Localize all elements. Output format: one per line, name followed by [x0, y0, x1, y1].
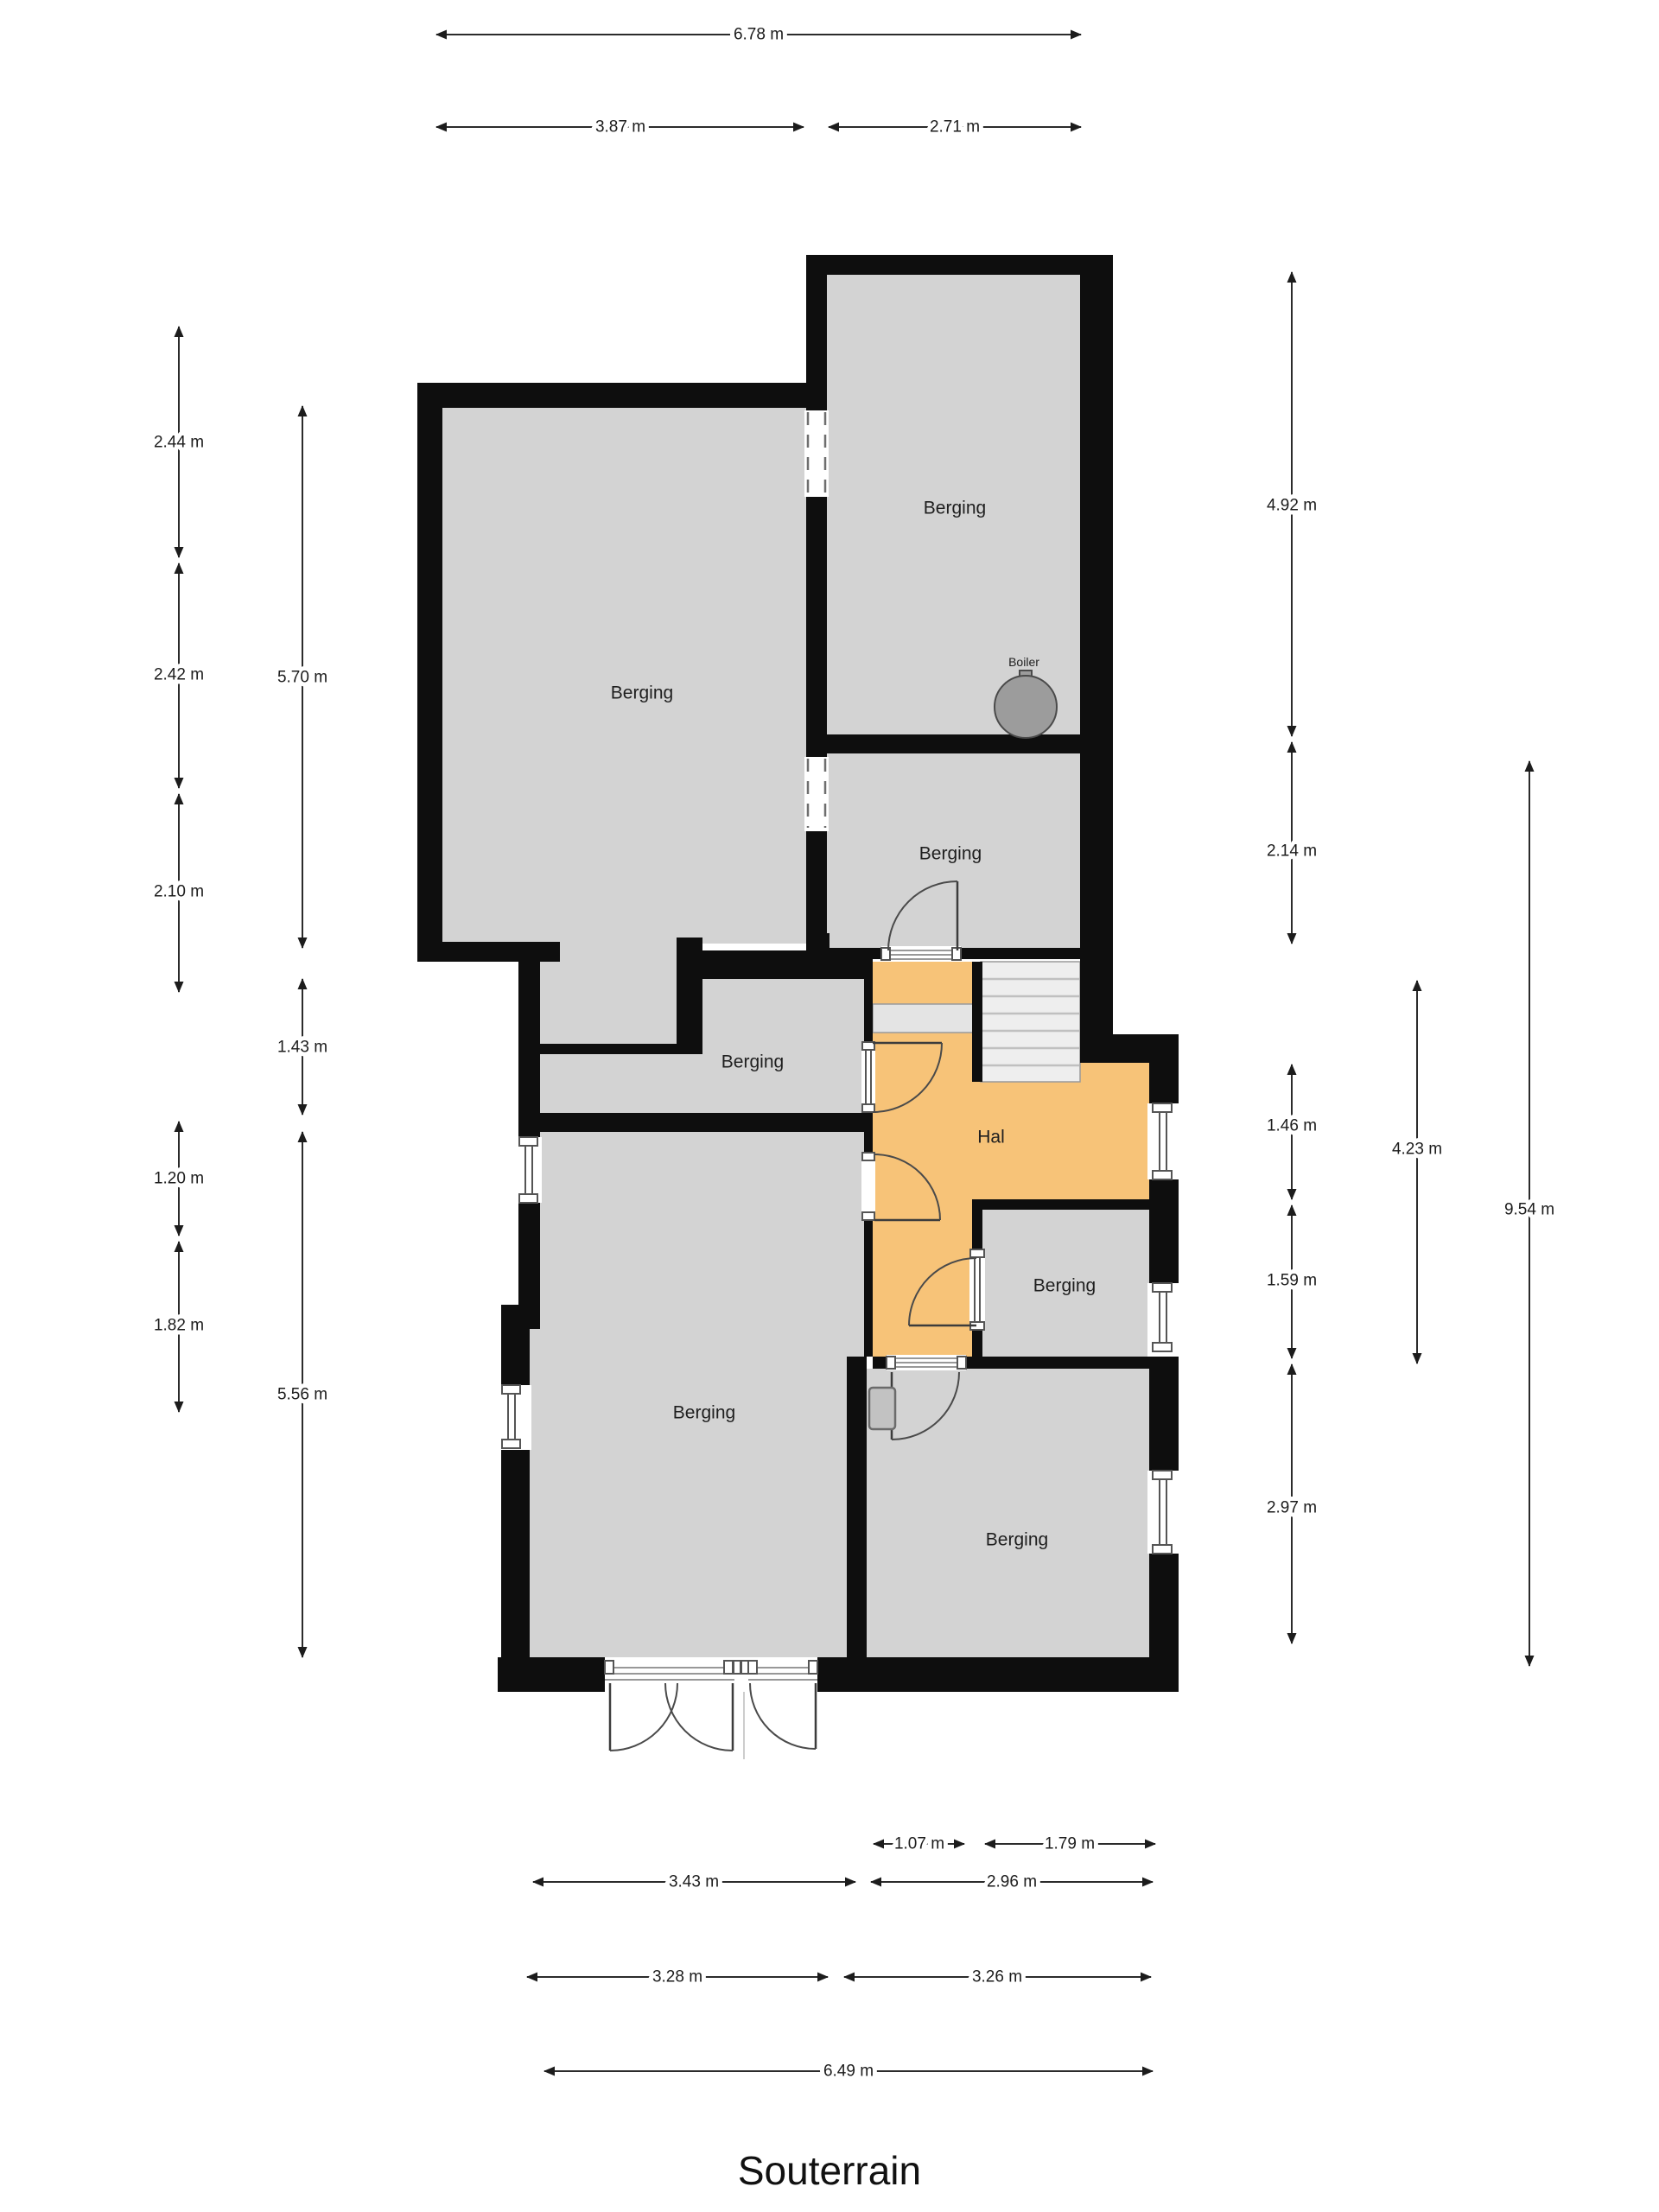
label-berging-mid-left: Berging	[721, 1052, 784, 1072]
room-berging-alcove	[540, 942, 677, 1044]
dim-left-seg3: 2.10 m	[154, 883, 204, 901]
door-opening-hal-west-2	[861, 1153, 875, 1220]
dim-bottom-row3-left: 3.28 m	[652, 1968, 702, 1986]
dim-right-berging: 1.59 m	[1267, 1272, 1317, 1290]
dim-left-seg2: 2.42 m	[154, 666, 204, 684]
dim-bottom-row2-right: 2.96 m	[987, 1873, 1037, 1891]
room-berging-mid-left	[702, 979, 864, 1113]
dim-right-hal: 1.46 m	[1267, 1117, 1317, 1135]
window-hal-right	[1147, 1103, 1180, 1179]
room-berging-bottom-left	[540, 1132, 864, 1357]
dim-top-right: 2.71 m	[930, 118, 980, 137]
floorplan-page: Berging Berging Berging Berging Hal Berg…	[0, 0, 1659, 2212]
label-berging-bottom-right: Berging	[986, 1530, 1048, 1550]
dim-left-mid: 1.43 m	[277, 1039, 327, 1057]
label-berging-top-left: Berging	[611, 683, 673, 703]
threshold-berging-hal-top	[881, 946, 961, 962]
dim-right-mid: 2.14 m	[1267, 842, 1317, 861]
threshold-hal-bottom	[887, 1355, 966, 1370]
dim-top-left: 3.87 m	[595, 118, 645, 137]
dim-right-top: 4.92 m	[1267, 497, 1317, 515]
door-opening-hal-west-1	[861, 1042, 875, 1112]
wall-opening-dashed-top	[804, 410, 829, 497]
door-opening-hal-r7	[969, 1249, 985, 1330]
page-title: Souterrain	[738, 2148, 921, 2193]
label-berging-bottom-left: Berging	[673, 1403, 735, 1423]
dim-right-total: 9.54 m	[1504, 1201, 1554, 1219]
label-boiler: Boiler	[1008, 655, 1039, 669]
dim-left-room-top: 5.70 m	[277, 669, 327, 687]
door-arc-ext-left	[610, 1683, 677, 1751]
room-berging-top-left	[442, 408, 806, 944]
window-left-upper	[517, 1137, 542, 1203]
meter-box	[869, 1388, 895, 1429]
room-berging-bottom-left-lower	[530, 1329, 847, 1657]
door-arc-ext-right	[750, 1683, 816, 1749]
window-left-lower	[499, 1385, 531, 1450]
label-berging-mid-right: Berging	[919, 844, 982, 864]
dim-top-total: 6.78 m	[734, 26, 784, 44]
dim-left-room-bottom: 5.56 m	[277, 1386, 327, 1404]
room-hal-left	[873, 1033, 972, 1357]
dim-right-bottom: 2.97 m	[1267, 1499, 1317, 1517]
door-arc-ext-mid	[665, 1683, 733, 1751]
stair-landing	[873, 1004, 974, 1033]
window-berging-right-small	[1147, 1283, 1180, 1357]
floorplan-drawing: Berging Berging Berging Berging Hal Berg…	[0, 0, 1659, 2212]
dim-bottom-row2-left: 3.43 m	[669, 1873, 719, 1891]
dim-left-seg1: 2.44 m	[154, 434, 204, 452]
stairs	[981, 962, 1080, 1082]
room-berging-bottom-right	[867, 1369, 1149, 1657]
room-hal-top-strip	[873, 962, 974, 1004]
label-hal: Hal	[977, 1128, 1005, 1147]
dim-right-hal-total: 4.23 m	[1392, 1141, 1442, 1159]
label-berging-right-small: Berging	[1033, 1276, 1096, 1296]
dim-left-seg4: 1.20 m	[154, 1170, 204, 1188]
window-berging-bottom-right	[1147, 1471, 1180, 1554]
label-berging-top-right: Berging	[924, 499, 986, 518]
dim-left-seg5: 1.82 m	[154, 1317, 204, 1335]
dim-bottom-row3-right: 3.26 m	[972, 1968, 1022, 1986]
wall-opening-dashed-bottom	[804, 757, 829, 831]
dim-bottom-door2: 1.79 m	[1045, 1835, 1095, 1853]
threshold-exterior-doors	[605, 1657, 817, 1692]
dim-bottom-door1: 1.07 m	[894, 1835, 944, 1853]
room-berging-mid-left-ext	[540, 1054, 702, 1113]
room-hal-right	[1080, 1063, 1149, 1199]
dim-bottom-total: 6.49 m	[823, 2063, 874, 2081]
